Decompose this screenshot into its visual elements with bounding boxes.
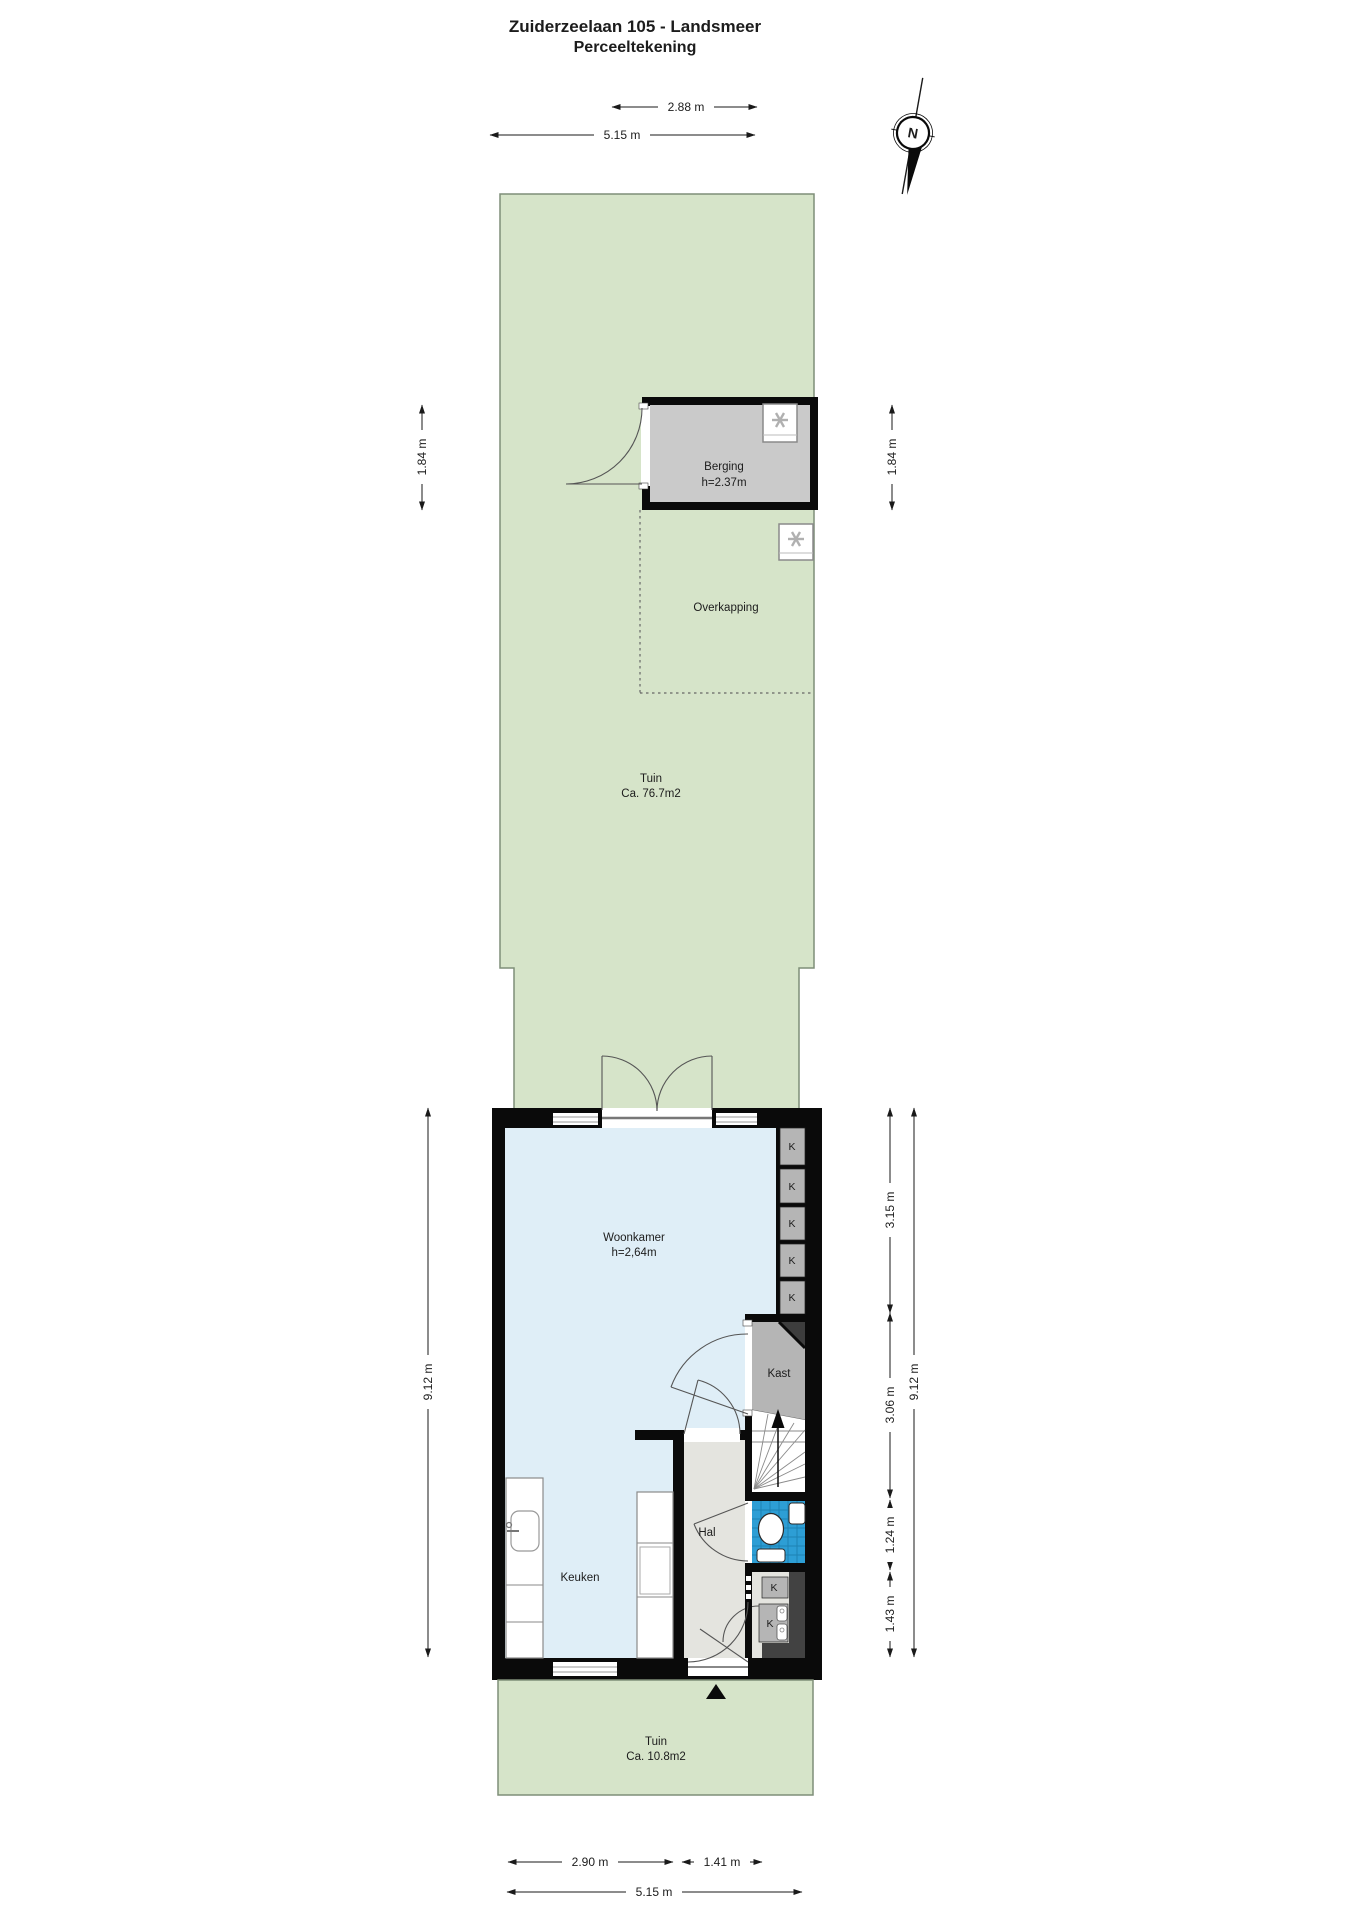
dimension-top-288: 2.88 m bbox=[612, 99, 757, 115]
dimension-bottom-290: 2.90 m bbox=[508, 1854, 673, 1870]
dim-label: 5.15 m bbox=[604, 128, 641, 142]
kitchen-counter-right bbox=[637, 1492, 673, 1658]
kitchen-window bbox=[553, 1662, 617, 1676]
dim-label: 5.15 m bbox=[636, 1885, 673, 1899]
dimension-right-124: 1.24 m bbox=[882, 1500, 898, 1570]
room-area-tuin-front: Ca. 10.8m2 bbox=[626, 1751, 685, 1763]
closet-column: K K K K K bbox=[776, 1128, 806, 1314]
dimension-right-912: 9.12 m bbox=[906, 1108, 922, 1657]
closet-k-label: K bbox=[766, 1618, 773, 1630]
washing-machine-icon bbox=[779, 524, 813, 560]
room-label-tuin-back: Tuin bbox=[640, 773, 662, 785]
dimension-right-315: 3.15 m bbox=[882, 1108, 898, 1313]
dim-label: 9.12 m bbox=[907, 1364, 921, 1401]
dimension-right-306: 3.06 m bbox=[882, 1313, 898, 1498]
floorplan-page: Zuiderzeelaan 105 - Landsmeer Perceeltek… bbox=[0, 0, 1358, 1920]
room-label-hal: Hal bbox=[698, 1527, 715, 1539]
closet-k-label: K bbox=[770, 1582, 777, 1594]
dim-label: 2.90 m bbox=[572, 1855, 609, 1869]
dim-label: 3.15 m bbox=[883, 1192, 897, 1229]
room-label-kast: Kast bbox=[767, 1368, 791, 1380]
toilet-icon bbox=[757, 1514, 785, 1563]
closet-k-label: K bbox=[788, 1181, 795, 1193]
room-label-tuin-front: Tuin bbox=[645, 1736, 667, 1748]
washing-machine-icon bbox=[763, 404, 797, 442]
dimension-bottom-141: 1.41 m bbox=[682, 1854, 762, 1870]
dimension-left-184: 1.84 m bbox=[414, 405, 430, 510]
room-label-keuken: Keuken bbox=[560, 1572, 599, 1584]
house: K K K K K Kast bbox=[492, 1056, 822, 1680]
dimension-left-912: 9.12 m bbox=[420, 1108, 436, 1657]
garden-back-plot bbox=[500, 194, 814, 1118]
dimension-top-515: 5.15 m bbox=[490, 127, 755, 143]
sink-icon bbox=[789, 1503, 805, 1524]
dimension-right-143: 1.43 m bbox=[882, 1572, 898, 1657]
room-label-overkapping: Overkapping bbox=[693, 602, 758, 614]
closet-k-label: K bbox=[788, 1292, 795, 1304]
hal-floor bbox=[684, 1440, 750, 1658]
closet-k-label: K bbox=[788, 1141, 795, 1153]
room-label-woonkamer: Woonkamer bbox=[603, 1232, 665, 1244]
dim-label: 1.41 m bbox=[704, 1855, 741, 1869]
dim-label: 1.84 m bbox=[415, 439, 429, 476]
closet-k-label: K bbox=[788, 1218, 795, 1230]
floorplan-drawing: Zuiderzeelaan 105 - Landsmeer Perceeltek… bbox=[0, 0, 1358, 1920]
kitchen-counter-left bbox=[506, 1478, 543, 1658]
page-title: Zuiderzeelaan 105 - Landsmeer bbox=[509, 17, 762, 36]
dim-label: 1.43 m bbox=[883, 1596, 897, 1633]
closet-k-label: K bbox=[788, 1255, 795, 1267]
dimension-bottom-515: 5.15 m bbox=[507, 1884, 802, 1900]
dim-label: 1.24 m bbox=[883, 1517, 897, 1554]
dim-label: 3.06 m bbox=[883, 1387, 897, 1424]
stairs bbox=[745, 1409, 805, 1501]
dim-label: 1.84 m bbox=[885, 439, 899, 476]
compass-north-icon: N bbox=[881, 74, 945, 198]
dim-label: 9.12 m bbox=[421, 1364, 435, 1401]
room-area-tuin-back: Ca. 76.7m2 bbox=[621, 788, 680, 800]
room-label-berging: Berging bbox=[704, 461, 744, 473]
room-height-berging: h=2.37m bbox=[701, 477, 746, 489]
dim-label: 2.88 m bbox=[668, 100, 705, 114]
dimension-right-184: 1.84 m bbox=[884, 405, 900, 510]
room-height-woonkamer: h=2,64m bbox=[611, 1247, 656, 1259]
bathroom bbox=[745, 1501, 805, 1572]
kast-room: Kast bbox=[745, 1314, 805, 1420]
page-subtitle: Perceeltekening bbox=[574, 39, 697, 56]
